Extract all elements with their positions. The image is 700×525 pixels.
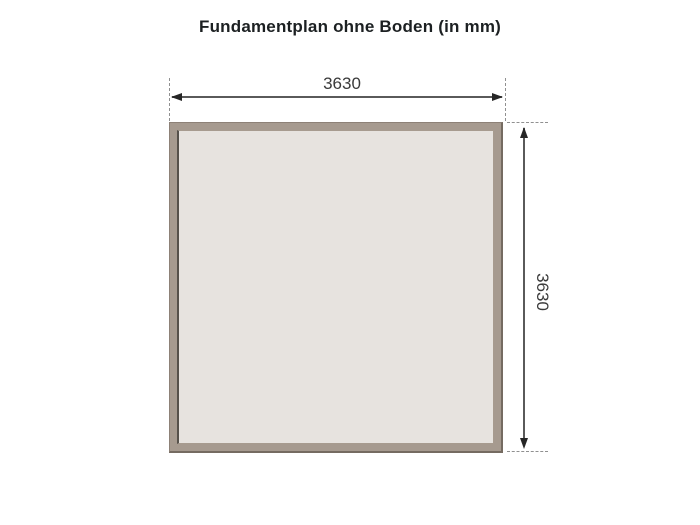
- extension-line-top-right: [505, 78, 506, 121]
- foundation-frame: [169, 122, 503, 453]
- width-dimension-line: [172, 96, 502, 98]
- height-dimension-label: 3630: [533, 262, 551, 322]
- dimension-arrow-down-icon: [520, 438, 528, 449]
- foundation-inner-area: [177, 130, 494, 444]
- height-dimension-line: [523, 128, 525, 438]
- foundation-plan-page: Fundamentplan ohne Boden (in mm) 3630 36…: [0, 0, 700, 525]
- width-dimension-label: 3630: [312, 75, 372, 93]
- dimension-arrow-left-icon: [171, 93, 182, 101]
- page-title: Fundamentplan ohne Boden (in mm): [0, 17, 700, 37]
- dimension-arrow-right-icon: [492, 93, 503, 101]
- extension-line-right-bottom: [507, 451, 548, 452]
- dimension-arrow-up-icon: [520, 127, 528, 138]
- extension-line-top-left: [169, 78, 170, 121]
- extension-line-right-top: [507, 122, 548, 123]
